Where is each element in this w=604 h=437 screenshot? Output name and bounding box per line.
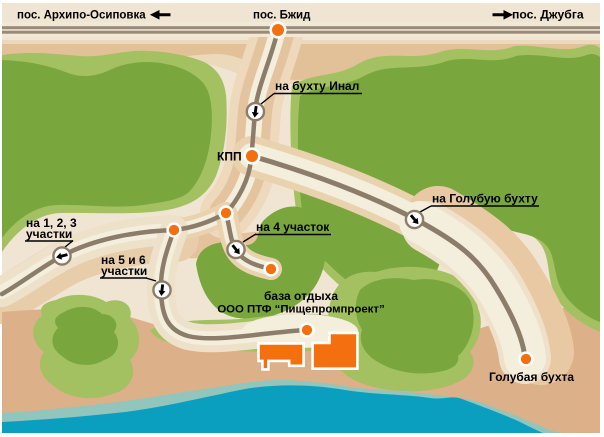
svg-text:ООО ПТФ “Пищепромпроект”: ООО ПТФ “Пищепромпроект”: [217, 304, 384, 316]
svg-text:участки: участки: [101, 264, 147, 278]
svg-text:пос. Бжид: пос. Бжид: [253, 10, 311, 22]
svg-text:пос. Архипо-Осиповка: пос. Архипо-Осиповка: [17, 10, 146, 22]
svg-text:пос. Джубга: пос. Джубга: [512, 8, 584, 22]
svg-text:Голубая бухта: Голубая бухта: [489, 370, 574, 384]
svg-text:КПП: КПП: [217, 150, 242, 164]
svg-text:участки: участки: [26, 227, 72, 241]
svg-text:база отдыха: база отдыха: [264, 289, 338, 303]
svg-text:на 4 участок: на 4 участок: [256, 220, 330, 234]
svg-text:на бухту Инал: на бухту Инал: [275, 79, 359, 93]
svg-text:на Голубую бухту: на Голубую бухту: [432, 192, 538, 206]
